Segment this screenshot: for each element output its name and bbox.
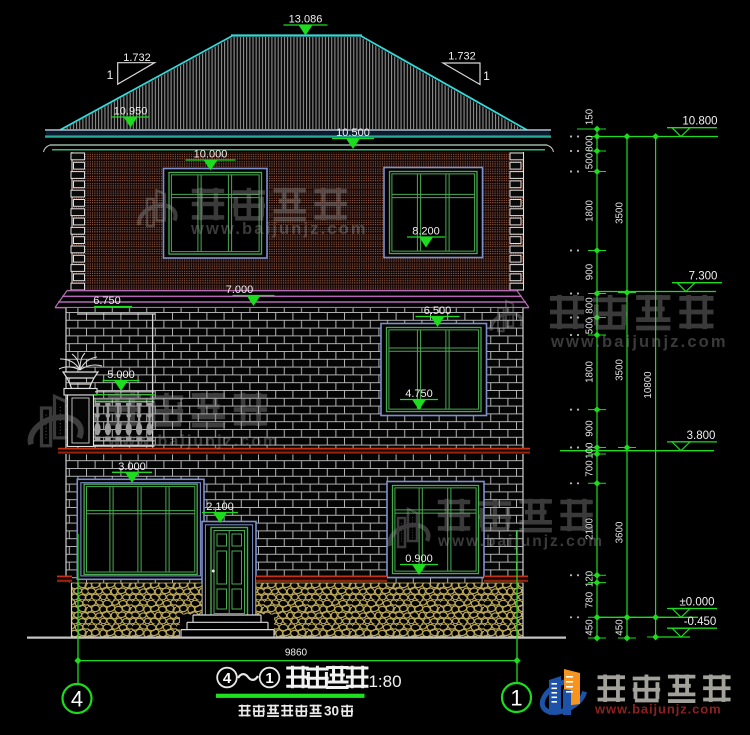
svg-text:10.950: 10.950: [114, 106, 148, 118]
svg-text:3500: 3500: [615, 202, 626, 224]
svg-text:10.000: 10.000: [194, 149, 228, 161]
svg-text:2.100: 2.100: [206, 501, 234, 513]
svg-text:0.900: 0.900: [405, 553, 433, 565]
svg-text:500: 500: [585, 317, 596, 334]
svg-text:5.000: 5.000: [107, 369, 135, 381]
svg-text:1: 1: [510, 686, 522, 711]
svg-text:1: 1: [265, 670, 273, 687]
svg-text:www.baijunjz.com: www.baijunjz.com: [190, 220, 368, 238]
svg-text:450: 450: [585, 619, 596, 636]
svg-text:120: 120: [585, 570, 596, 587]
svg-text:1.732: 1.732: [123, 52, 151, 64]
svg-text:150: 150: [585, 108, 596, 125]
svg-text:www.baijunjz.com: www.baijunjz.com: [550, 333, 728, 351]
svg-text:www.baijunjz.com: www.baijunjz.com: [437, 533, 604, 550]
svg-text:3.800: 3.800: [687, 430, 716, 442]
svg-text:900: 900: [585, 420, 596, 437]
svg-text:6.750: 6.750: [93, 295, 121, 307]
svg-text:1: 1: [107, 68, 114, 82]
svg-text:10.800: 10.800: [682, 116, 717, 128]
svg-text:4: 4: [71, 687, 83, 712]
svg-text:-0.450: -0.450: [684, 616, 717, 628]
svg-text:1800: 1800: [585, 200, 596, 222]
svg-text:4: 4: [223, 670, 232, 687]
svg-text:800: 800: [585, 135, 596, 152]
svg-text:www.baijunjz.com: www.baijunjz.com: [594, 702, 722, 717]
svg-text:1:80: 1:80: [368, 672, 401, 691]
svg-text:1.732: 1.732: [448, 51, 476, 63]
svg-text:1800: 1800: [585, 361, 596, 383]
svg-text:7.300: 7.300: [689, 271, 718, 283]
svg-text:900: 900: [585, 263, 596, 280]
svg-text:7.000: 7.000: [226, 284, 254, 296]
svg-text:10800: 10800: [643, 371, 654, 399]
svg-text:100: 100: [585, 442, 596, 459]
svg-text:3500: 3500: [615, 359, 626, 381]
svg-text:6.500: 6.500: [424, 305, 452, 317]
svg-text:1: 1: [483, 69, 490, 83]
svg-text:www.baijunjz.com: www.baijunjz.com: [107, 433, 279, 450]
svg-text:500: 500: [585, 152, 596, 169]
svg-text:8.200: 8.200: [412, 226, 440, 238]
svg-text:4.750: 4.750: [405, 388, 433, 400]
svg-text:450: 450: [615, 619, 626, 636]
svg-text:700: 700: [585, 460, 596, 477]
svg-text:30: 30: [324, 704, 339, 719]
svg-text:±0.000: ±0.000: [679, 597, 714, 609]
svg-text:9860: 9860: [285, 648, 308, 659]
svg-text:3600: 3600: [615, 521, 626, 543]
svg-text:3.000: 3.000: [118, 461, 146, 473]
svg-text:780: 780: [585, 591, 596, 608]
svg-text:13.086: 13.086: [289, 14, 323, 26]
svg-text:10.500: 10.500: [336, 127, 370, 139]
